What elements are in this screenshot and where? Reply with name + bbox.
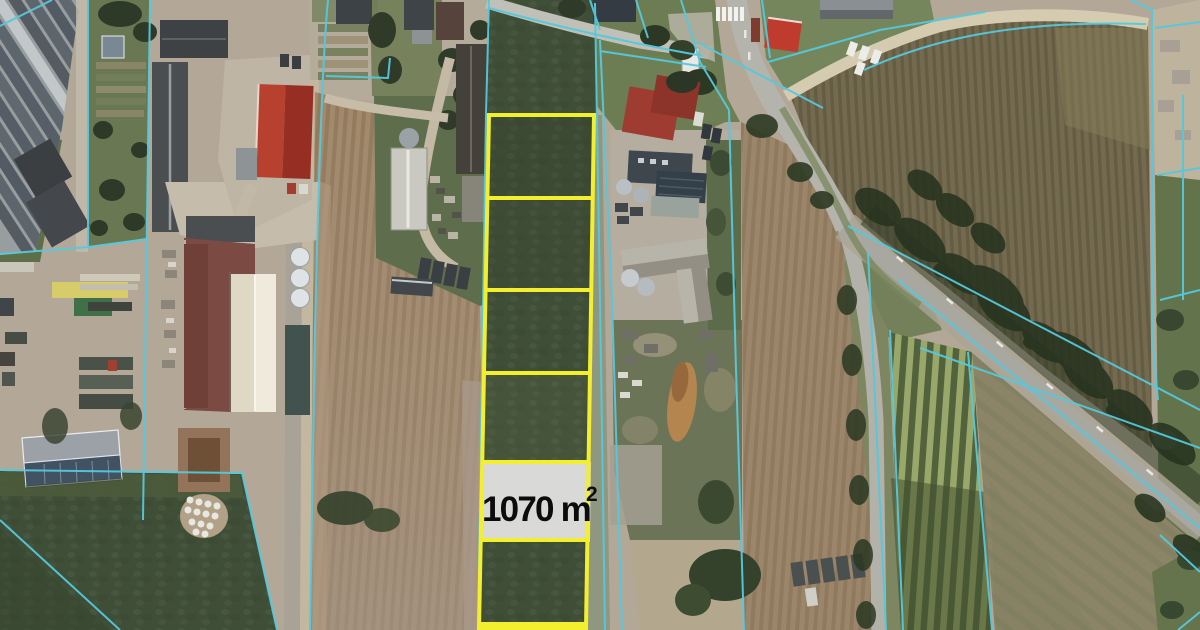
svg-text:2: 2 — [586, 483, 598, 506]
svg-text:1070 m: 1070 m — [482, 490, 590, 529]
